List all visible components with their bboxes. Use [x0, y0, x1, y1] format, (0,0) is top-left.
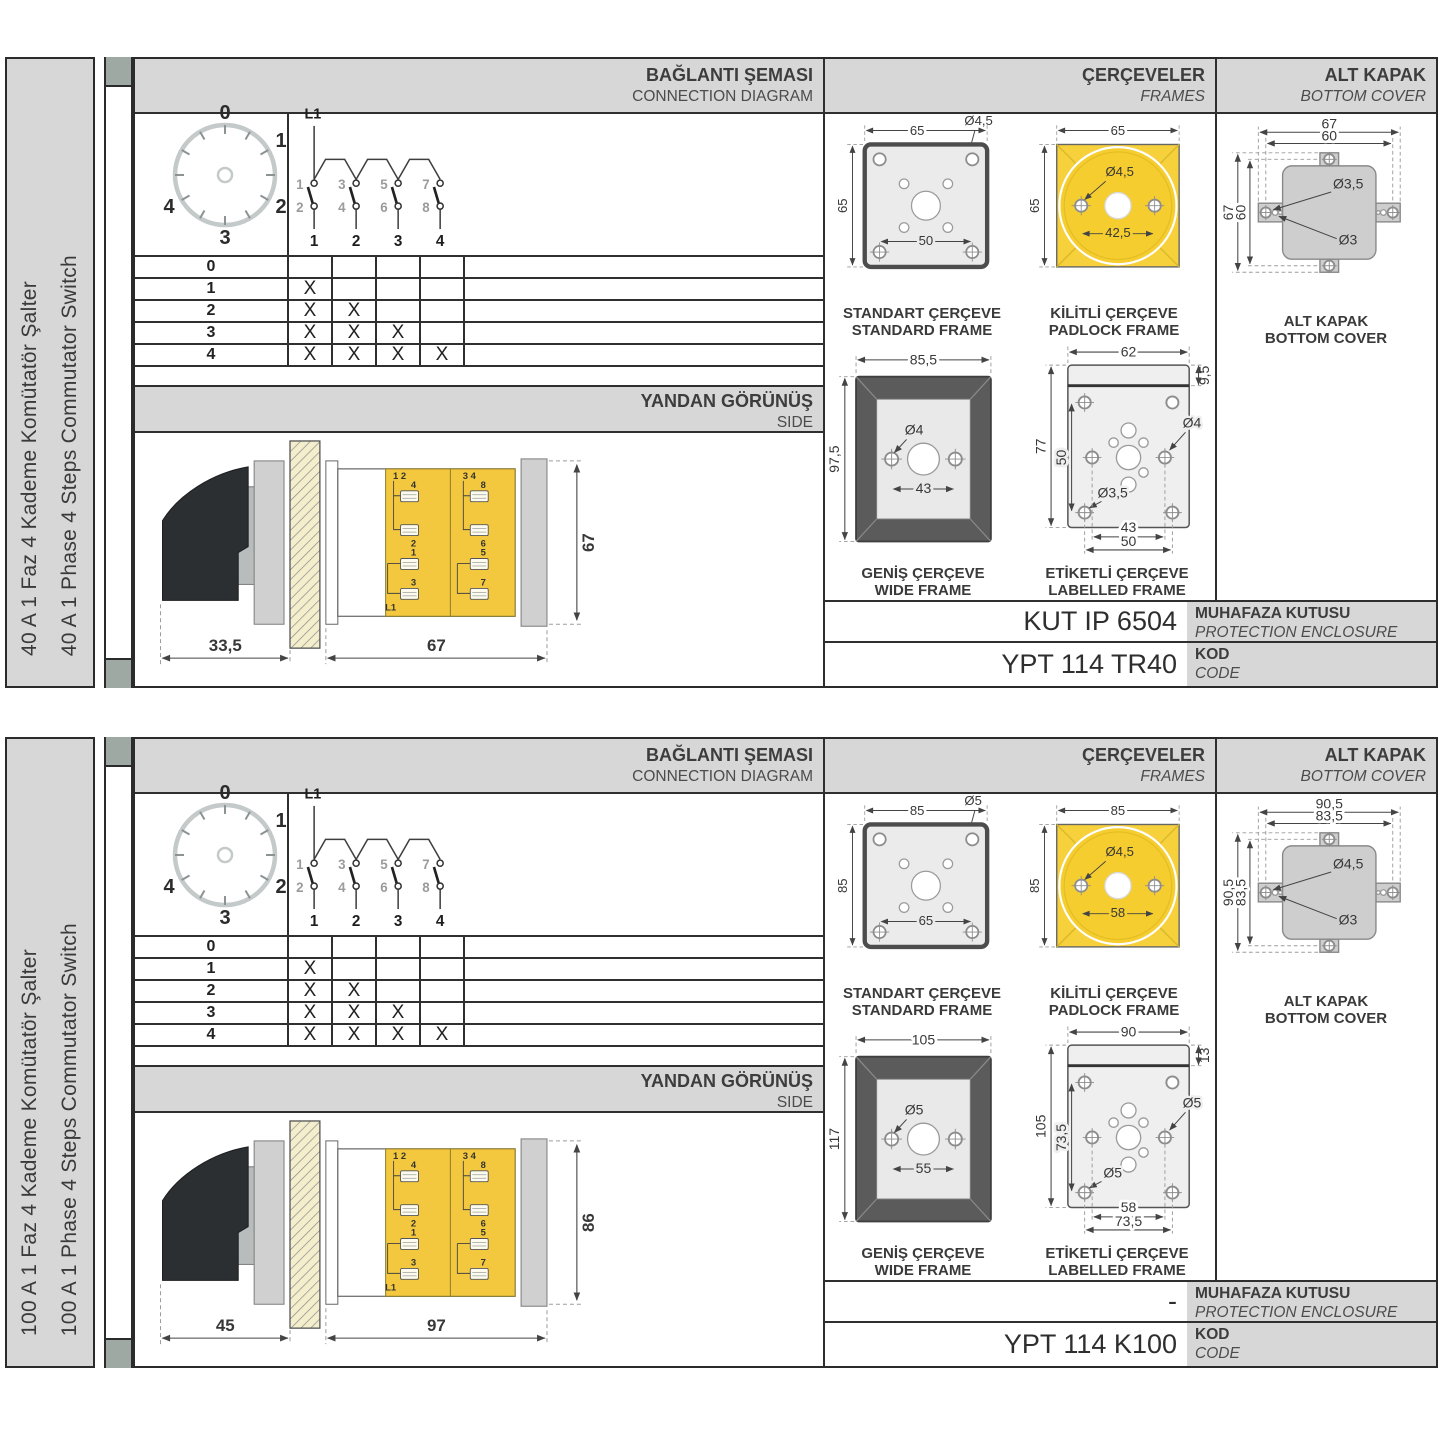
mark-cell: X: [289, 1025, 333, 1047]
term-5: 5: [481, 548, 486, 559]
empty-cell: [465, 257, 823, 279]
contact-4: 4: [338, 880, 346, 895]
side-title-en: SIDE: [135, 413, 813, 433]
standard-frame-drawing: 85 Ø5 85 65: [829, 793, 1015, 981]
lab-vpitch: 73,5: [1053, 1124, 1069, 1151]
code-row: YPT 114 TR40 KOD CODE: [823, 641, 1436, 686]
std-height: 65: [835, 198, 850, 213]
mark-cell: X: [333, 301, 377, 323]
empty-cell: [465, 937, 823, 959]
schematic-wiring: [314, 806, 440, 909]
mark-cell: [421, 257, 465, 279]
contact-schematic-drawing: L1 1 3: [289, 783, 471, 931]
pole-numbers: 1 2 3 4: [310, 233, 445, 250]
empty-cell: [465, 959, 823, 981]
pad-height: 65: [1027, 198, 1042, 213]
enclosure-label: MUHAFAZA KUTUSU PROTECTION ENCLOSURE: [1187, 602, 1436, 641]
connection-title-tr: BAĞLANTI ŞEMASI: [135, 744, 813, 767]
wide-hole-label: Ø4: [905, 422, 924, 438]
code-label: KOD CODE: [1187, 643, 1436, 686]
std-pitch: 65: [919, 913, 934, 928]
mark-cell: [377, 937, 421, 959]
term-8: 8: [481, 480, 486, 491]
mark-cell: [377, 257, 421, 279]
mark-cell: [421, 937, 465, 959]
dim-body: 67: [427, 636, 446, 655]
datasheet-panel: BAĞLANTI ŞEMASI CONNECTION DIAGRAM ÇERÇE…: [133, 57, 1438, 688]
mark-cell: X: [333, 323, 377, 345]
cover-h-inner: 83,5: [1232, 879, 1248, 906]
empty-cell: [465, 1025, 823, 1047]
rotary-dial-drawing: 0 1 2 3 4: [149, 95, 301, 247]
empty-cell: [465, 301, 823, 323]
contact-2: 2: [296, 200, 303, 215]
enclosure-row: KUT IP 6504 MUHAFAZA KUTUSU PROTECTION E…: [823, 600, 1436, 641]
mark-cell: [421, 279, 465, 301]
cover-hole-small: Ø3: [1339, 911, 1358, 927]
enclosure-row: - MUHAFAZA KUTUSU PROTECTION ENCLOSURE: [823, 1280, 1436, 1321]
pole-1: 1: [310, 233, 319, 250]
pole-numbers: 1 2 3 4: [310, 913, 445, 930]
term-7: 7: [481, 577, 486, 588]
side-view-drawing: 1 2 3 4 4 2 1 3 8 6 5 7 L1 86 45: [145, 1115, 690, 1366]
step-cell: 0: [135, 257, 289, 279]
std-width: 85: [910, 803, 925, 818]
switch-handle: [163, 1147, 249, 1280]
schematic-wiring: [314, 126, 440, 229]
sidebar-product-title: 100 A 1 Faz 4 Kademe Komütatör Şalter 10…: [5, 737, 95, 1368]
switching-table: 0 1 X 2 X X 3 X X X 4 X X: [135, 935, 823, 1047]
pad-width: 65: [1111, 123, 1126, 138]
schematic-blades: [308, 867, 439, 883]
wide-width: 105: [912, 1032, 936, 1048]
frames-title-en: FRAMES: [823, 767, 1205, 787]
contact-4: 4: [338, 200, 346, 215]
dial-label-0: 0: [219, 782, 230, 804]
std-hole-label: Ø4,5: [964, 113, 992, 128]
bottom-cover-drawing: 67 60 67 60: [1221, 117, 1431, 309]
mark-cell: X: [377, 345, 421, 367]
contact-5: 5: [380, 177, 388, 192]
wide-width: 85,5: [910, 352, 938, 368]
empty-cell: [465, 323, 823, 345]
mark-cell: [377, 279, 421, 301]
cover-hole-tab: Ø3,5: [1333, 175, 1364, 191]
pole-2: 2: [352, 233, 361, 250]
enclosure-label-tr: MUHAFAZA KUTUSU: [1195, 604, 1436, 623]
cover-w-inner: 60: [1321, 128, 1337, 144]
side-title-tr: YANDAN GÖRÜNÜŞ: [135, 1070, 813, 1093]
side-title-en: SIDE: [135, 1093, 813, 1113]
code-label-en: CODE: [1195, 1344, 1436, 1363]
switching-table: 0 1 X 2 X X 3 X X X 4 X X: [135, 255, 823, 367]
product-title-turkish: 100 A 1 Faz 4 Kademe Komütatör Şalter: [18, 949, 42, 1336]
pad-pitch: 42,5: [1105, 225, 1131, 240]
cover-caption-tr: ALT KAPAK: [1221, 993, 1431, 1010]
dim-front: 45: [216, 1316, 235, 1335]
lab-caption-tr: ETİKETLİ ÇERÇEVE: [1019, 565, 1215, 582]
contact-5: 5: [380, 857, 388, 872]
divider-connection-frames: [823, 739, 825, 1366]
padlock-frame-caption: KİLİTLİ ÇERÇEVE PADLOCK FRAME: [1021, 985, 1207, 1019]
term-5: 5: [481, 1228, 486, 1239]
mark-cell: [333, 937, 377, 959]
side-title-tr: YANDAN GÖRÜNÜŞ: [135, 390, 813, 413]
wide-frame-drawing: 105 117 Ø5 55: [829, 1023, 1017, 1243]
lab-width: 90: [1121, 1024, 1137, 1040]
frames-title-tr: ÇERÇEVELER: [823, 64, 1205, 87]
product-title-english: 40 A 1 Phase 4 Steps Commutator Switch: [58, 255, 82, 656]
lab-strip-dim: 9,5: [1196, 365, 1212, 385]
cover-title-en: BOTTOM COVER: [1215, 87, 1426, 107]
wide-hole-label: Ø5: [905, 1102, 924, 1118]
dial-label-1: 1: [275, 130, 286, 152]
enclosure-label: MUHAFAZA KUTUSU PROTECTION ENCLOSURE: [1187, 1282, 1436, 1321]
step-cell: 3: [135, 323, 289, 345]
mark-cell: X: [289, 323, 333, 345]
wide-caption-tr: GENİŞ ÇERÇEVE: [829, 565, 1017, 582]
mark-cell: X: [333, 981, 377, 1003]
enclosure-label-en: PROTECTION ENCLOSURE: [1195, 623, 1436, 642]
std-caption-tr: STANDART ÇERÇEVE: [829, 305, 1015, 322]
strip-square-top: [106, 737, 131, 767]
empty-cell: [465, 981, 823, 1003]
pad-caption-tr: KİLİTLİ ÇERÇEVE: [1021, 305, 1207, 322]
enclosure-value: -: [823, 1282, 1187, 1321]
dial-label-3: 3: [219, 907, 230, 929]
end-plate: [521, 1139, 547, 1306]
mark-cell: X: [377, 323, 421, 345]
step-cell: 2: [135, 981, 289, 1003]
strip-square-top: [106, 57, 131, 87]
term-1: 1: [411, 1228, 416, 1239]
schematic-phase-label: L1: [305, 786, 322, 802]
step-cell: 0: [135, 937, 289, 959]
labelled-frame-drawing: 90 13 105 73,5 Ø5: [1015, 1019, 1215, 1243]
cover-title-en: BOTTOM COVER: [1215, 767, 1426, 787]
std-caption-en: STANDARD FRAME: [829, 322, 1015, 339]
std-hole-label: Ø5: [964, 793, 982, 808]
padlock-frame-drawing: 65 65 Ø4,5 42,5: [1021, 113, 1207, 301]
divider-frames-cover: [1215, 59, 1217, 600]
cover-caption-tr: ALT KAPAK: [1221, 313, 1431, 330]
code-label-tr: KOD: [1195, 645, 1436, 664]
lab-hole-corner: Ø3,5: [1097, 485, 1128, 501]
term-4: 4: [411, 1160, 417, 1171]
pole-2: 2: [352, 913, 361, 930]
header-cover: ALT KAPAK BOTTOM COVER: [1215, 59, 1436, 114]
rotary-dial-drawing: 0 1 2 3 4: [149, 775, 301, 927]
pad-caption-en: PADLOCK FRAME: [1021, 1002, 1207, 1019]
switch-handle: [163, 467, 249, 600]
standard-frame-caption: STANDART ÇERÇEVE STANDARD FRAME: [829, 305, 1015, 339]
wide-height: 97,5: [826, 445, 842, 473]
cover-title-tr: ALT KAPAK: [1215, 64, 1426, 87]
side-view-drawing: 1 2 3 4 4 2 1 3 8 6 5 7 L1 67 33,5: [145, 435, 690, 686]
wide-caption-en: WIDE FRAME: [829, 1262, 1017, 1279]
binding-strip: [104, 737, 133, 1368]
step-cell: 4: [135, 1025, 289, 1047]
cover-title-tr: ALT KAPAK: [1215, 744, 1426, 767]
lab-hole-side: Ø5: [1183, 1095, 1202, 1111]
dial-label-2: 2: [275, 196, 286, 218]
lab-height: 105: [1032, 1114, 1048, 1138]
pad-caption-en: PADLOCK FRAME: [1021, 322, 1207, 339]
mark-cell: X: [377, 1025, 421, 1047]
contact-3: 3: [338, 177, 345, 192]
panel-hatched: [290, 441, 320, 648]
code-row: YPT 114 K100 KOD CODE: [823, 1321, 1436, 1366]
contact-6: 6: [380, 880, 387, 895]
body-phase-label: L1: [385, 1282, 396, 1293]
bottom-cover-caption: ALT KAPAK BOTTOM COVER: [1221, 313, 1431, 347]
bottom-cover-caption: ALT KAPAK BOTTOM COVER: [1221, 993, 1431, 1027]
cover-caption-en: BOTTOM COVER: [1221, 1010, 1431, 1027]
pad-pitch: 58: [1111, 905, 1126, 920]
dial-label-4: 4: [163, 876, 175, 898]
dial-label-3: 3: [219, 227, 230, 249]
code-value: YPT 114 K100: [823, 1323, 1187, 1366]
header-frames: ÇERÇEVELER FRAMES: [823, 739, 1215, 794]
connection-title-tr: BAĞLANTI ŞEMASI: [135, 64, 813, 87]
dial-label-2: 2: [275, 876, 286, 898]
lab-width: 62: [1121, 344, 1137, 360]
schematic-phase-label: L1: [305, 106, 322, 122]
lab-height: 77: [1032, 438, 1048, 454]
contact-6: 6: [380, 200, 387, 215]
pole-1: 1: [310, 913, 319, 930]
lab-pitch-b: 50: [1121, 533, 1137, 549]
dial-label-4: 4: [163, 196, 175, 218]
mark-cell: X: [421, 345, 465, 367]
contact-schematic-drawing: L1 1 3: [289, 103, 471, 251]
step-cell: 3: [135, 1003, 289, 1025]
labelled-frame-drawing: 62 9,5 77 50 Ø4: [1015, 339, 1215, 563]
mark-cell: X: [289, 959, 333, 981]
term-3: 3: [411, 577, 416, 588]
step-cell: 1: [135, 959, 289, 981]
mark-cell: [333, 959, 377, 981]
product-section: 100 A 1 Faz 4 Kademe Komütatör Şalter 10…: [5, 737, 1438, 1368]
product-title-english: 100 A 1 Phase 4 Steps Commutator Switch: [58, 923, 82, 1336]
strip-square-bottom: [106, 1338, 131, 1368]
cover-hole-small: Ø3: [1339, 231, 1358, 247]
pair-label-12: 1 2: [393, 471, 406, 482]
mark-cell: [421, 301, 465, 323]
term-1: 1: [411, 548, 416, 559]
code-value: YPT 114 TR40: [823, 643, 1187, 686]
mark-cell: [377, 959, 421, 981]
contact-3: 3: [338, 857, 345, 872]
std-height: 85: [835, 878, 850, 893]
wide-caption-tr: GENİŞ ÇERÇEVE: [829, 1245, 1017, 1262]
enclosure-label-en: PROTECTION ENCLOSURE: [1195, 1303, 1436, 1322]
enclosure-label-tr: MUHAFAZA KUTUSU: [1195, 1284, 1436, 1303]
step-cell: 4: [135, 345, 289, 367]
dim-front: 33,5: [209, 636, 242, 655]
strip-square-bottom: [106, 658, 131, 688]
mark-cell: X: [421, 1025, 465, 1047]
mark-cell: X: [333, 345, 377, 367]
mark-cell: [421, 959, 465, 981]
std-width: 65: [910, 123, 925, 138]
term-8: 8: [481, 1160, 486, 1171]
sidebar-product-title: 40 A 1 Faz 4 Kademe Komütatör Şalter 40 …: [5, 57, 95, 688]
pad-hole-label: Ø4,5: [1105, 164, 1133, 179]
code-label-en: CODE: [1195, 664, 1436, 683]
empty-cell: [465, 345, 823, 367]
mark-cell: [289, 937, 333, 959]
code-label: KOD CODE: [1187, 1323, 1436, 1366]
std-pitch: 50: [919, 233, 934, 248]
pair-label-34: 3 4: [463, 471, 477, 482]
cover-hole-tab: Ø4,5: [1333, 855, 1364, 871]
dial-label-0: 0: [219, 102, 230, 124]
divider-connection-frames: [823, 59, 825, 686]
contact-1: 1: [296, 177, 304, 192]
mark-cell: [289, 257, 333, 279]
step-cell: 2: [135, 301, 289, 323]
pole-3: 3: [394, 233, 403, 250]
wide-height: 117: [826, 1128, 842, 1151]
dial-label-1: 1: [275, 810, 286, 832]
mark-cell: X: [289, 301, 333, 323]
wide-pitch: 55: [916, 1160, 932, 1176]
term-7: 7: [481, 1257, 486, 1268]
pad-width: 85: [1111, 803, 1126, 818]
body-phase-label: L1: [385, 602, 396, 613]
labelled-frame-caption: ETİKETLİ ÇERÇEVE LABELLED FRAME: [1019, 565, 1215, 599]
pair-label-12: 1 2: [393, 1151, 406, 1162]
contact-8: 8: [422, 200, 430, 215]
empty-cell: [465, 1003, 823, 1025]
lab-hole-side: Ø4: [1183, 415, 1202, 431]
lab-caption-en: LABELLED FRAME: [1019, 1262, 1215, 1279]
pad-caption-tr: KİLİTLİ ÇERÇEVE: [1021, 985, 1207, 1002]
product-title-turkish: 40 A 1 Faz 4 Kademe Komütatör Şalter: [18, 281, 42, 656]
contact-8: 8: [422, 880, 430, 895]
mounting-plate: [254, 1141, 284, 1304]
lab-hole-corner: Ø5: [1103, 1165, 1122, 1181]
std-caption-tr: STANDART ÇERÇEVE: [829, 985, 1015, 1002]
mark-cell: X: [289, 981, 333, 1003]
mark-cell: X: [289, 345, 333, 367]
dim-height: 86: [579, 1213, 598, 1232]
binding-strip: [104, 57, 133, 688]
contact-7: 7: [422, 177, 429, 192]
code-label-tr: KOD: [1195, 1325, 1436, 1344]
lab-caption-tr: ETİKETLİ ÇERÇEVE: [1019, 1245, 1215, 1262]
mark-cell: [421, 981, 465, 1003]
wide-frame-caption: GENİŞ ÇERÇEVE WIDE FRAME: [829, 1245, 1017, 1279]
step-cell: 1: [135, 279, 289, 301]
header-frames: ÇERÇEVELER FRAMES: [823, 59, 1215, 114]
std-caption-en: STANDARD FRAME: [829, 1002, 1015, 1019]
frames-title-en: FRAMES: [823, 87, 1205, 107]
wide-frame-caption: GENİŞ ÇERÇEVE WIDE FRAME: [829, 565, 1017, 599]
mark-cell: X: [289, 1003, 333, 1025]
cover-w-inner: 83,5: [1316, 808, 1343, 824]
pad-hole-label: Ø4,5: [1105, 844, 1133, 859]
bottom-cover-drawing: 90,5 83,5 90,5 83,5: [1221, 797, 1431, 989]
contact-1: 1: [296, 857, 304, 872]
mark-cell: [333, 279, 377, 301]
panel-hatched: [290, 1121, 320, 1328]
contact-2: 2: [296, 880, 303, 895]
header-cover: ALT KAPAK BOTTOM COVER: [1215, 739, 1436, 794]
cover-caption-en: BOTTOM COVER: [1221, 330, 1431, 347]
dim-height: 67: [579, 533, 598, 552]
standard-frame-drawing: 65 Ø4,5 65 50: [829, 113, 1015, 301]
term-4: 4: [411, 480, 417, 491]
schematic-blades: [308, 187, 439, 203]
mark-cell: X: [377, 1003, 421, 1025]
lab-strip-dim: 13: [1196, 1047, 1212, 1063]
pole-4: 4: [436, 913, 445, 930]
lab-vpitch: 50: [1053, 450, 1069, 466]
product-section: 40 A 1 Faz 4 Kademe Komütatör Şalter 40 …: [5, 57, 1438, 688]
mark-cell: X: [333, 1003, 377, 1025]
contact-7: 7: [422, 857, 429, 872]
side-view-band: YANDAN GÖRÜNÜŞ SIDE: [135, 385, 823, 433]
mark-cell: [421, 1003, 465, 1025]
pair-label-34: 3 4: [463, 1151, 477, 1162]
dim-body: 97: [427, 1316, 446, 1335]
mark-cell: [333, 257, 377, 279]
end-plate: [521, 459, 547, 626]
mark-cell: X: [289, 279, 333, 301]
lab-caption-en: LABELLED FRAME: [1019, 582, 1215, 599]
labelled-frame-caption: ETİKETLİ ÇERÇEVE LABELLED FRAME: [1019, 1245, 1215, 1279]
side-view-band: YANDAN GÖRÜNÜŞ SIDE: [135, 1065, 823, 1113]
frames-title-tr: ÇERÇEVELER: [823, 744, 1205, 767]
pole-4: 4: [436, 233, 445, 250]
catalog-page: 40 A 1 Faz 4 Kademe Komütatör Şalter 40 …: [0, 0, 1445, 1445]
cover-h-inner: 60: [1232, 205, 1248, 221]
wide-caption-en: WIDE FRAME: [829, 582, 1017, 599]
mounting-plate: [254, 461, 284, 624]
wide-pitch: 43: [916, 480, 932, 496]
term-3: 3: [411, 1257, 416, 1268]
mark-cell: X: [333, 1025, 377, 1047]
mark-cell: [377, 981, 421, 1003]
padlock-frame-drawing: 85 85 Ø4,5 58: [1021, 793, 1207, 981]
lab-pitch-b: 73,5: [1115, 1213, 1142, 1229]
standard-frame-caption: STANDART ÇERÇEVE STANDARD FRAME: [829, 985, 1015, 1019]
wide-frame-drawing: 85,5 97,5 Ø4 43: [829, 343, 1017, 563]
pole-3: 3: [394, 913, 403, 930]
mark-cell: [377, 301, 421, 323]
empty-cell: [465, 279, 823, 301]
datasheet-panel: BAĞLANTI ŞEMASI CONNECTION DIAGRAM ÇERÇE…: [133, 737, 1438, 1368]
padlock-frame-caption: KİLİTLİ ÇERÇEVE PADLOCK FRAME: [1021, 305, 1207, 339]
divider-frames-cover: [1215, 739, 1217, 1280]
mark-cell: [421, 323, 465, 345]
pad-height: 85: [1027, 878, 1042, 893]
enclosure-value: KUT IP 6504: [823, 602, 1187, 641]
